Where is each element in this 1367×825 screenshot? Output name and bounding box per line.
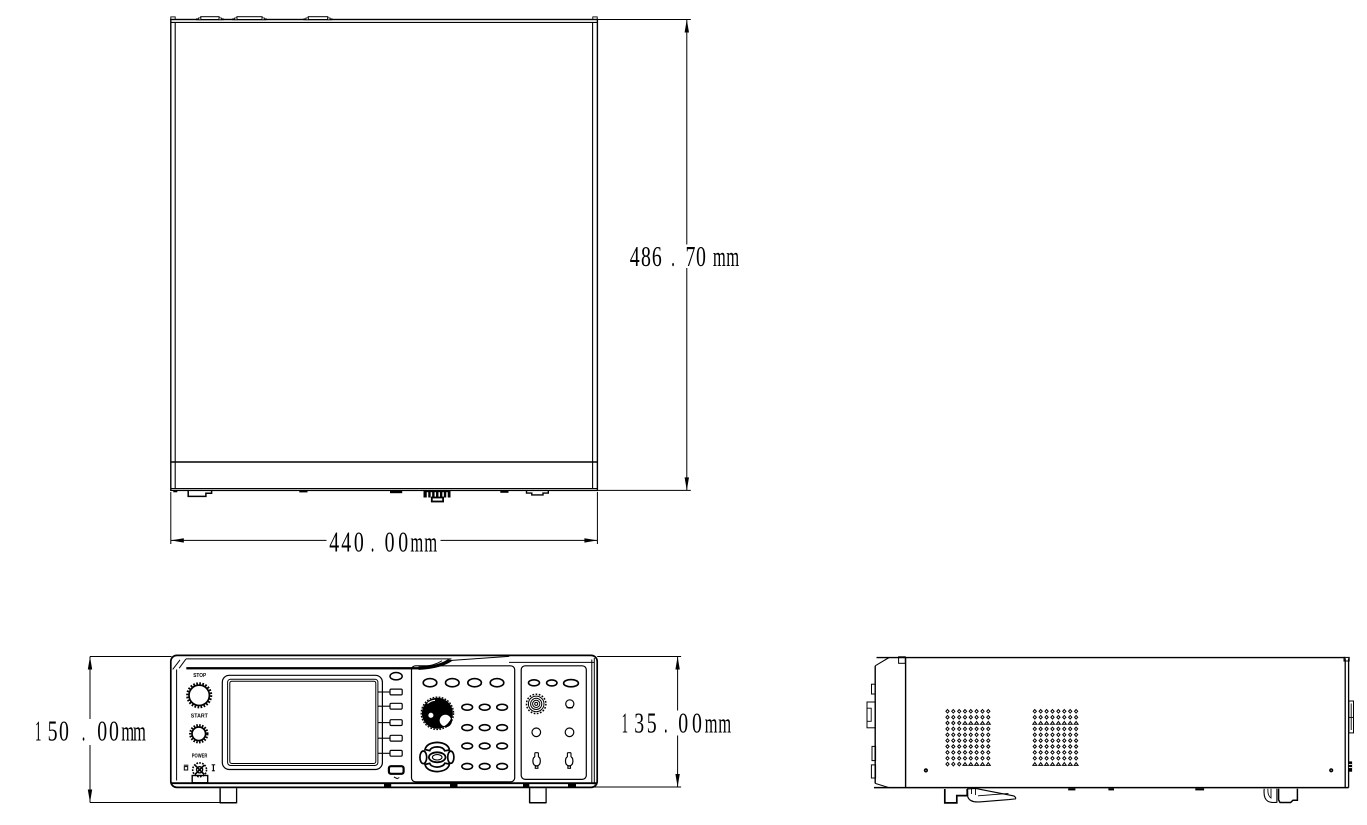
svg-text:m: m [133,716,146,748]
svg-text:0: 0 [398,527,408,559]
svg-text:m: m [718,708,731,740]
svg-text:.: . [371,527,375,559]
svg-text:.: . [671,241,675,273]
svg-text:0: 0 [59,716,69,748]
svg-text:5: 5 [647,708,657,740]
svg-text:7: 7 [686,241,696,273]
svg-text:0: 0 [696,241,706,273]
svg-text:m: m [705,708,718,740]
svg-text:0: 0 [385,527,395,559]
svg-text:5: 5 [48,716,58,748]
svg-text:0: 0 [97,716,107,748]
svg-text:STOP: STOP [193,673,207,679]
svg-text:8: 8 [641,241,651,273]
svg-text:0: 0 [354,527,364,559]
svg-text:START: START [191,713,208,719]
svg-text:6: 6 [652,241,662,273]
svg-text:4: 4 [630,241,640,273]
svg-text:4: 4 [341,527,351,559]
svg-text:0: 0 [692,708,702,740]
svg-text:.: . [664,708,668,740]
svg-text:0: 0 [678,708,688,740]
svg-text:POWER: POWER [192,753,208,759]
svg-text:m: m [424,527,437,559]
svg-text:m: m [713,241,726,273]
svg-text:m: m [410,527,423,559]
svg-text:1: 1 [35,716,41,748]
svg-text:0: 0 [109,716,119,748]
svg-text:m: m [726,241,739,273]
svg-text:4: 4 [329,527,339,559]
svg-text:3: 3 [634,708,644,740]
svg-text:.: . [82,716,86,748]
svg-text:1: 1 [622,708,628,740]
